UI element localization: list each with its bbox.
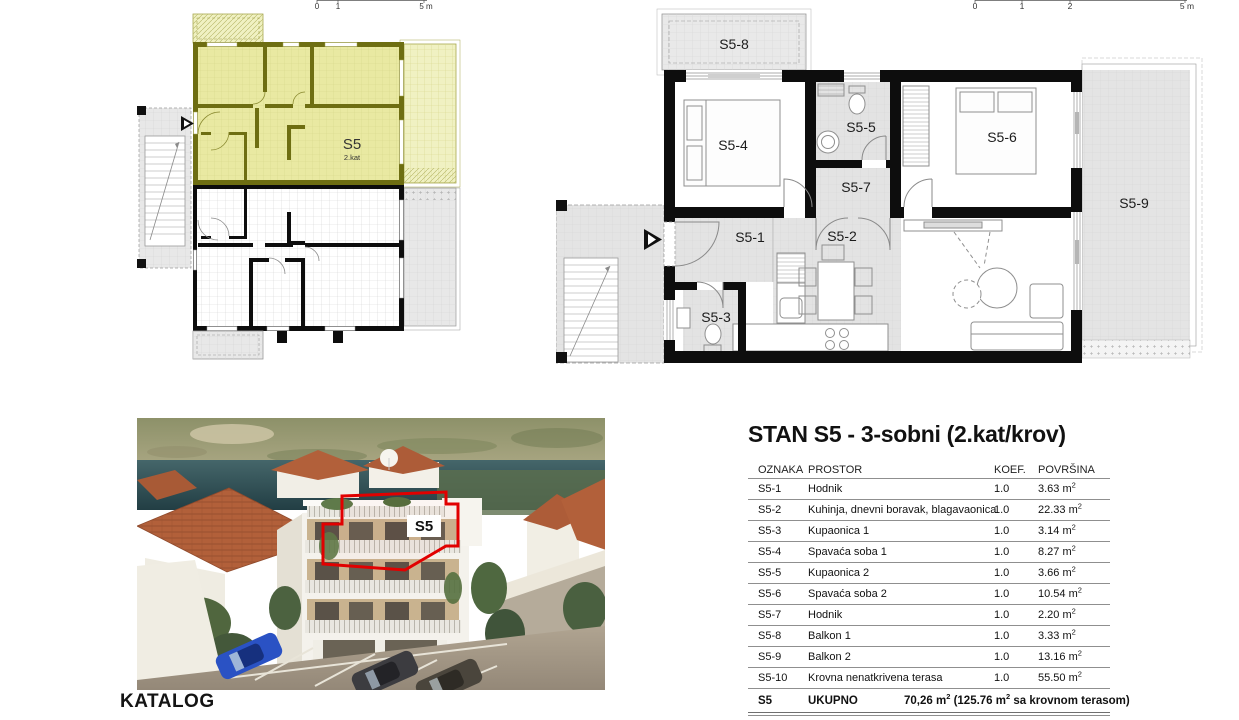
- total-underline: [748, 713, 1110, 716]
- detail-floor-plan: 0 1 2 5 m: [556, 0, 1239, 380]
- scale-tick-5m: 5 m: [1180, 1, 1194, 11]
- cell-povrsina: 10.54 m2: [1038, 588, 1115, 600]
- cell-prostor: Kupaonica 1: [808, 525, 994, 537]
- cell-prostor: Spavaća soba 2: [808, 588, 994, 600]
- cell-koef: 1.0: [994, 588, 1038, 600]
- total-oznaka: S5: [758, 695, 808, 707]
- table-row: S5-7Hodnik1.02.20 m2: [748, 605, 1110, 626]
- catalog-page: 0 1 5 m: [0, 0, 1239, 720]
- cell-koef: 1.0: [994, 504, 1038, 516]
- mini-unit-s5: S5 2.kat: [193, 40, 460, 187]
- scale-tick-0: 0: [315, 2, 320, 11]
- cell-povrsina: 3.63 m2: [1038, 483, 1115, 495]
- room-label-s5-3: S5-3: [701, 309, 731, 325]
- cell-oznaka: S5-1: [758, 483, 808, 495]
- room-label-s5-5: S5-5: [846, 119, 876, 135]
- total-label: UKUPNO: [808, 695, 904, 707]
- cell-koef: 1.0: [994, 630, 1038, 642]
- cell-prostor: Kupaonica 2: [808, 567, 994, 579]
- room-label-s5-4: S5-4: [718, 137, 748, 153]
- table-row: S5-3Kupaonica 11.03.14 m2: [748, 521, 1110, 542]
- building-photo: S5: [137, 418, 605, 690]
- col-prostor: PROSTOR: [808, 464, 994, 476]
- spec-table-body: S5-1Hodnik1.03.63 m2S5-2Kuhinja, dnevni …: [748, 479, 1110, 689]
- total-value: 70,26 m2 (125.76 m2 sa krovnom terasom): [904, 695, 1130, 707]
- spec-title: STAN S5 - 3-sobni (2.kat/krov): [748, 421, 1110, 448]
- cell-koef: 1.0: [994, 651, 1038, 663]
- scale-tick-5m: 5 m: [419, 2, 433, 11]
- scale-tick-2: 2: [1068, 1, 1073, 11]
- cell-koef: 1.0: [994, 546, 1038, 558]
- cell-oznaka: S5-7: [758, 609, 808, 621]
- mini-unit-other: [193, 185, 460, 331]
- mini-balcony-top: [193, 14, 263, 43]
- mini-unit-label: S5: [343, 136, 361, 153]
- room-label-s5-9: S5-9: [1119, 195, 1149, 211]
- scale-tick-0: 0: [973, 1, 978, 11]
- cell-oznaka: S5-5: [758, 567, 808, 579]
- col-povrsina: POVRŠINA: [1038, 464, 1115, 476]
- table-row: S5-2Kuhinja, dnevni boravak, blagavaonic…: [748, 500, 1110, 521]
- table-row: S5-5Kupaonica 21.03.66 m2: [748, 563, 1110, 584]
- scale-tick-1: 1: [336, 2, 341, 11]
- room-balcony-s5-8: S5-8: [657, 9, 811, 75]
- cell-povrsina: 3.66 m2: [1038, 567, 1115, 579]
- cell-prostor: Spavaća soba 1: [808, 546, 994, 558]
- cell-prostor: Kuhinja, dnevni boravak, blagavaonica: [808, 504, 994, 516]
- cell-povrsina: 55.50 m2: [1038, 672, 1115, 684]
- table-row: S5-1Hodnik1.03.63 m2: [748, 479, 1110, 500]
- mini-stairwell: [137, 106, 191, 268]
- cell-prostor: Balkon 1: [808, 630, 994, 642]
- hillside: [137, 418, 605, 465]
- cell-prostor: Balkon 2: [808, 651, 994, 663]
- cell-povrsina: 2.20 m2: [1038, 609, 1115, 621]
- cell-oznaka: S5-2: [758, 504, 808, 516]
- room-label-s5-6: S5-6: [987, 129, 1017, 145]
- col-oznaka: OZNAKA: [758, 464, 808, 476]
- mini-scale-bar: 0 1 5 m: [315, 0, 433, 11]
- cell-oznaka: S5-10: [758, 672, 808, 684]
- cell-koef: 1.0: [994, 567, 1038, 579]
- room-label-s5-2: S5-2: [827, 228, 857, 244]
- mini-floor-plan: 0 1 5 m: [137, 0, 467, 380]
- cell-povrsina: 3.14 m2: [1038, 525, 1115, 537]
- spec-table-header: OZNAKA PROSTOR KOEF. POVRŠINA: [748, 461, 1110, 479]
- cell-povrsina: 13.16 m2: [1038, 651, 1115, 663]
- cell-prostor: Hodnik: [808, 483, 994, 495]
- cell-prostor: Krovna nenatkrivena terasa: [808, 672, 994, 684]
- mini-unit-floor: 2.kat: [344, 153, 361, 162]
- cell-prostor: Hodnik: [808, 609, 994, 621]
- cell-oznaka: S5-3: [758, 525, 808, 537]
- cell-oznaka: S5-9: [758, 651, 808, 663]
- scale-tick-1: 1: [1020, 1, 1025, 11]
- table-row: S5-8Balkon 11.03.33 m2: [748, 626, 1110, 647]
- room-terrace-s5-9: S5-9: [1082, 58, 1202, 358]
- cell-oznaka: S5-6: [758, 588, 808, 600]
- detail-stairwell: [556, 200, 664, 363]
- detail-scale-bar: 0 1 2 5 m: [973, 0, 1194, 11]
- table-row: S5-10Krovna nenatkrivena terasa1.055.50 …: [748, 668, 1110, 689]
- room-label-s5-7: S5-7: [841, 179, 871, 195]
- cell-koef: 1.0: [994, 609, 1038, 621]
- cell-povrsina: 22.33 m2: [1038, 504, 1115, 516]
- table-row: S5-4Spavaća soba 11.08.27 m2: [748, 542, 1110, 563]
- mini-balcony-bottom: [193, 331, 343, 359]
- room-label-s5-1: S5-1: [735, 229, 765, 245]
- spec-table: OZNAKA PROSTOR KOEF. POVRŠINA S5-1Hodnik…: [748, 461, 1110, 716]
- table-row: S5-6Spavaća soba 21.010.54 m2: [748, 584, 1110, 605]
- katalog-label: KATALOG: [120, 691, 215, 713]
- cell-povrsina: 8.27 m2: [1038, 546, 1115, 558]
- cell-oznaka: S5-4: [758, 546, 808, 558]
- cell-oznaka: S5-8: [758, 630, 808, 642]
- table-row: S5-9Balkon 21.013.16 m2: [748, 647, 1110, 668]
- unit-spec: STAN S5 - 3-sobni (2.kat/krov) OZNAKA PR…: [748, 421, 1110, 716]
- spec-table-total: S5 UKUPNO 70,26 m2 (125.76 m2 sa krovnom…: [748, 689, 1110, 713]
- photo-unit-label: S5: [415, 518, 433, 535]
- cell-koef: 1.0: [994, 672, 1038, 684]
- cell-povrsina: 3.33 m2: [1038, 630, 1115, 642]
- col-koef: KOEF.: [994, 464, 1038, 476]
- cell-koef: 1.0: [994, 483, 1038, 495]
- cell-koef: 1.0: [994, 525, 1038, 537]
- room-label-s5-8: S5-8: [719, 36, 749, 52]
